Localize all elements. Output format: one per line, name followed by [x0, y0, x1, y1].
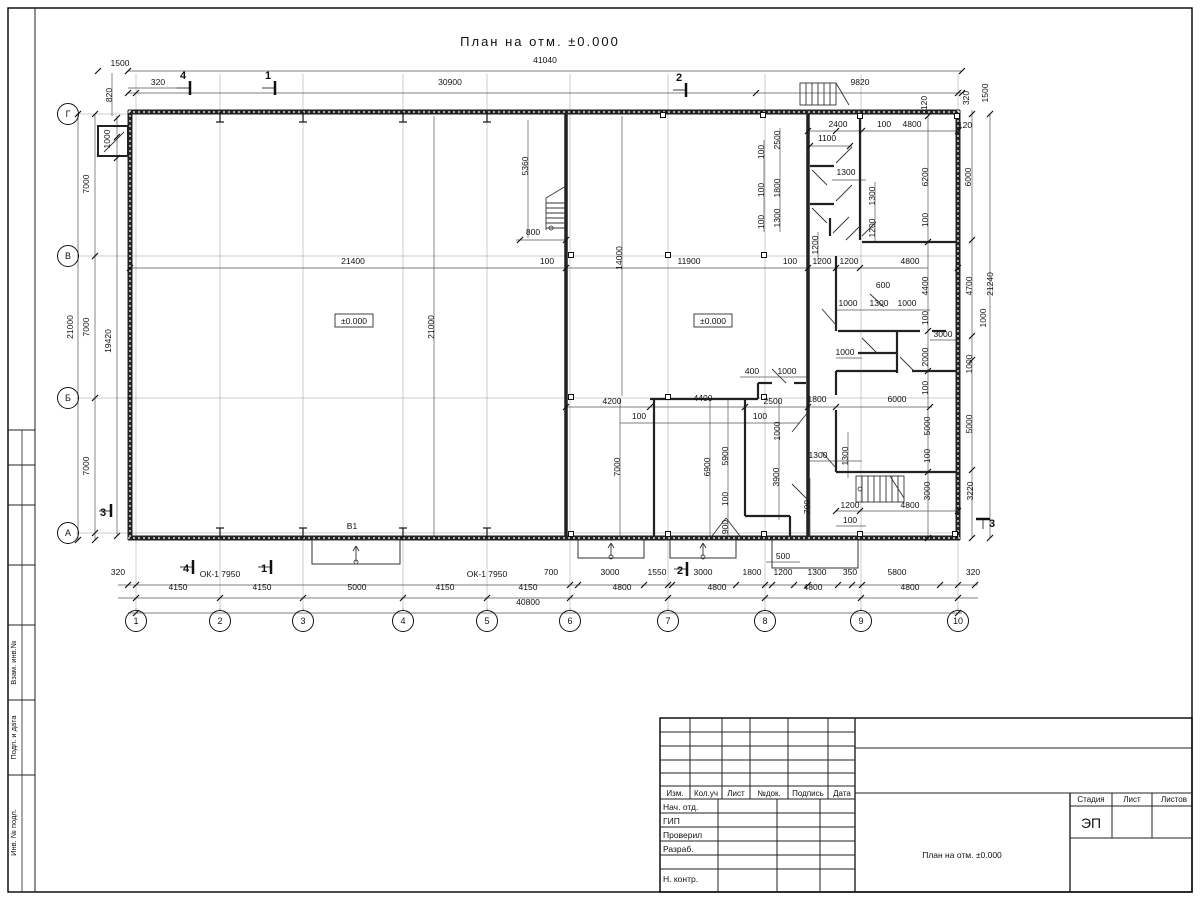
dimension-label: 7000: [81, 456, 91, 475]
dimension-label: 1200: [774, 567, 793, 577]
sheet-frame: Взам. инв.№Подп. и датаИнв. № подл.: [8, 8, 1192, 892]
dimension-label: 2500: [772, 130, 782, 149]
label: Подп. и дата: [9, 715, 18, 760]
label: 2: [677, 565, 683, 577]
dimension-label: 41040: [533, 55, 557, 65]
dimension-label: 21000: [65, 315, 75, 339]
dimension-lines: [78, 71, 990, 613]
dimension-label: 1300: [809, 450, 828, 460]
dimension-label: 500: [776, 551, 790, 561]
dimension-label: 4800: [901, 256, 920, 266]
dimension-label: 1300: [772, 208, 782, 227]
dimension-label: 800: [526, 227, 540, 237]
dimension-label: 900: [720, 520, 730, 534]
dimension-label: 100: [753, 411, 767, 421]
dimension-label: 100: [922, 449, 932, 463]
label: Лист: [1123, 795, 1141, 804]
dimension-label: 1000: [898, 298, 917, 308]
dimension-label: 1000: [772, 421, 782, 440]
dimension-label: 4400: [694, 393, 713, 403]
dimension-label: 9820: [851, 77, 870, 87]
label: 1: [265, 70, 271, 82]
dimension-label: 4800: [804, 582, 823, 592]
dimension-label: 14000: [614, 246, 624, 270]
dimension-label: 1000: [964, 354, 974, 373]
dimension-ticks: [75, 68, 993, 616]
dimension-label: 21240: [985, 272, 995, 296]
dimension-label: 4800: [901, 500, 920, 510]
dimension-label: 100: [756, 145, 766, 159]
dimension-label: 320: [966, 567, 980, 577]
dimension-label: 4700: [964, 276, 974, 295]
dimension-label: 820: [104, 88, 114, 102]
dimension-label: 1550: [648, 567, 667, 577]
dimension-label: 6000: [963, 167, 973, 186]
label: В: [65, 251, 71, 261]
dimension-label: ОК-1 7950: [467, 569, 508, 579]
dimension-label: 5900: [720, 446, 730, 465]
dimension-label: 2000: [920, 347, 930, 366]
dimension-label: 100: [920, 311, 930, 325]
dimension-label: 7000: [81, 174, 91, 193]
dimension-label: 2500: [764, 396, 783, 406]
label: 2: [217, 616, 222, 626]
label: Изм.: [666, 789, 683, 798]
dimension-label: 11900: [677, 256, 700, 266]
dimension-label: 100: [756, 215, 766, 229]
dimension-label: 3000: [934, 329, 953, 339]
dimension-label: 21400: [341, 256, 365, 266]
dimension-label: 5800: [888, 567, 907, 577]
dimension-label: 1300: [867, 186, 877, 205]
dimension-label: 1000: [102, 129, 112, 148]
label: Нач. отд.: [663, 802, 698, 812]
dimension-label: 4150: [519, 582, 538, 592]
label: 4: [180, 70, 187, 82]
dimension-label: 1500: [111, 58, 130, 68]
dimension-label: 3000: [694, 567, 713, 577]
label: Взам. инв.№: [9, 640, 18, 684]
dimension-label: 21000: [426, 315, 436, 339]
dimension-label: 6200: [920, 167, 930, 186]
dimension-label: 6000: [888, 394, 907, 404]
dimension-label: 4200: [603, 396, 622, 406]
dimension-label: 1800: [743, 567, 762, 577]
dimension-label: 3000: [601, 567, 620, 577]
label: Лист: [727, 789, 745, 798]
label: 4: [183, 563, 190, 575]
label: Г: [66, 109, 71, 119]
dimension-label: 600: [876, 280, 890, 290]
dimension-label: В1: [347, 521, 358, 531]
dimension-label: 100: [632, 411, 646, 421]
label: 10: [953, 616, 963, 626]
dimension-label: 100: [920, 381, 930, 395]
dimension-label: 3900: [771, 467, 781, 486]
label: Проверил: [663, 830, 702, 840]
label: 3: [300, 616, 305, 626]
label: 5: [484, 616, 489, 626]
label: Разраб.: [663, 844, 694, 854]
dimension-label: 400: [745, 366, 759, 376]
label: Б: [65, 393, 71, 403]
dimension-label: 5000: [964, 414, 974, 433]
dimension-label: 4800: [901, 582, 920, 592]
dimension-label: 1000: [839, 298, 858, 308]
label: ±0.000: [341, 316, 367, 326]
details-layer: [104, 83, 960, 568]
dimension-label: 19420: [103, 329, 113, 353]
dimension-label: 1200: [840, 256, 859, 266]
dimension-label: 320: [151, 77, 165, 87]
label: 8: [762, 616, 767, 626]
label: 3: [100, 507, 106, 519]
dimension-label: 100: [756, 183, 766, 197]
dimension-label: 6900: [702, 457, 712, 476]
grid-lines: [76, 74, 960, 610]
dimension-label: 1800: [772, 178, 782, 197]
dimension-label: 1500: [980, 83, 990, 102]
dimension-label: 100: [783, 256, 797, 266]
label: 1: [133, 616, 138, 626]
label: ГИП: [663, 816, 680, 826]
label: 6: [567, 616, 572, 626]
dimension-label: 100: [720, 492, 730, 506]
label: Кол.уч: [694, 789, 718, 798]
title-block: Изм.Кол.учЛист№док.ПодписьДатаНач. отд.Г…: [660, 718, 1192, 892]
dimension-label: 40800: [516, 597, 540, 607]
label: Листов: [1161, 795, 1187, 804]
dimension-label: 320: [111, 567, 125, 577]
label: №док.: [757, 789, 780, 798]
dimension-label: ОК-1 7950: [200, 569, 241, 579]
dimension-label: 4800: [708, 582, 727, 592]
label: Стадия: [1077, 795, 1104, 804]
dimension-label: 1800: [808, 394, 827, 404]
dimension-label: 1000: [778, 366, 797, 376]
dimension-label: 4400: [920, 276, 930, 295]
dimension-label: 1200: [810, 235, 820, 254]
text-layer: План на отм. ±0.000 41040309009820150032…: [58, 34, 996, 632]
dimension-label: 3220: [965, 481, 975, 500]
dimension-label: 1200: [867, 218, 877, 237]
dimension-label: 350: [843, 567, 857, 577]
label: 4: [400, 616, 405, 626]
dimension-label: 1000: [978, 308, 988, 327]
dimension-label: 1300: [840, 446, 850, 465]
dimension-label: 700: [544, 567, 558, 577]
dimension-label: 100: [877, 119, 891, 129]
dimension-label: 7000: [612, 457, 622, 476]
label: 7: [665, 616, 670, 626]
dimension-label: 1200: [813, 256, 832, 266]
dimension-label: 5000: [348, 582, 367, 592]
dimension-label: 100: [843, 515, 857, 525]
dimension-label: 3000: [922, 481, 932, 500]
dimension-label: 30900: [438, 77, 462, 87]
label: План на отм. ±0.000: [922, 850, 1002, 860]
dimension-label: 1200: [841, 500, 860, 510]
label: Дата: [833, 789, 851, 798]
label: А: [65, 528, 71, 538]
plan-title: План на отм. ±0.000: [460, 34, 620, 49]
dimension-label: 5000: [922, 416, 932, 435]
dimension-label: 100: [540, 256, 554, 266]
label: ±0.000: [700, 316, 726, 326]
label: 9: [858, 616, 863, 626]
dimension-label: 1300: [808, 567, 827, 577]
dimension-label: 4800: [903, 119, 922, 129]
label: ЭП: [1081, 815, 1101, 831]
dimension-label: 700: [802, 500, 812, 514]
dimension-label: 4150: [253, 582, 272, 592]
dimension-label: 2400: [829, 119, 848, 129]
dimension-label: 4150: [436, 582, 455, 592]
label: Инв. № подл.: [9, 809, 18, 856]
floor-plan-canvas: Взам. инв.№Подп. и датаИнв. № подл. План…: [0, 0, 1200, 900]
label: Подпись: [792, 789, 824, 798]
dimension-label: 4150: [169, 582, 188, 592]
dimension-label: 1000: [836, 347, 855, 357]
dimension-label: 120: [919, 96, 929, 110]
label: 2: [676, 72, 682, 84]
dimension-label: 100: [920, 213, 930, 227]
dimension-label: 5360: [520, 156, 530, 175]
dimension-label: 120: [958, 120, 972, 130]
dimension-label: 1100: [818, 133, 837, 143]
label: 1: [261, 563, 267, 575]
dimension-label: 1300: [870, 298, 889, 308]
dimension-label: 4800: [613, 582, 632, 592]
dimension-label: 320: [961, 91, 971, 105]
label: Н. контр.: [663, 874, 698, 884]
drawing-sheet: Взам. инв.№Подп. и датаИнв. № подл. План…: [0, 0, 1200, 900]
dimension-label: 7000: [81, 317, 91, 336]
dimension-label: 1300: [837, 167, 856, 177]
